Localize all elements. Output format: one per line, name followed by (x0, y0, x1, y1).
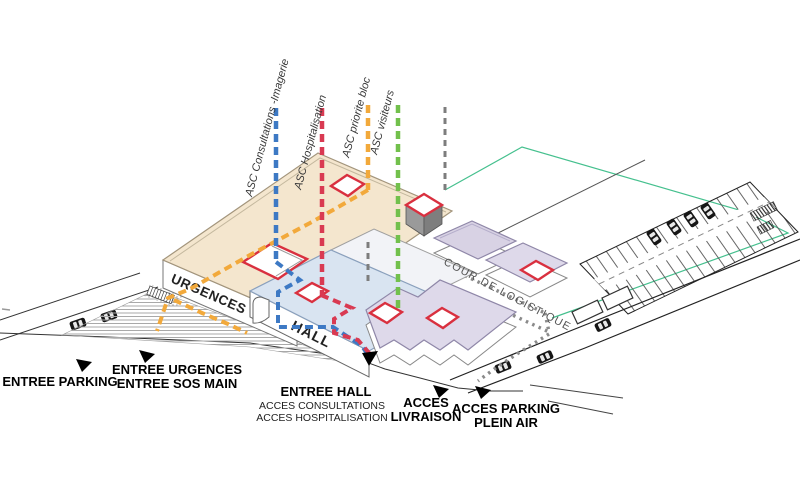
acces-livraison-label-1: ACCES (403, 395, 449, 410)
road-car-icon (594, 317, 612, 332)
acces-parking-label-1: ACCES PARKING (452, 401, 560, 416)
entree-parking-label: ENTREE PARKING (2, 374, 117, 389)
asc-label-visiteurs: ASC visiteurs (368, 88, 397, 156)
kiosk (253, 297, 269, 323)
axonometric-drawing: URGENCES HALL COUR DE LOGISTIQUE ASC Con… (0, 0, 800, 478)
acces-parking-label-2: PLEIN AIR (474, 415, 538, 430)
site-diagram: URGENCES HALL COUR DE LOGISTIQUE ASC Con… (0, 0, 800, 478)
entree-hall-label-1: ENTREE HALL (281, 384, 372, 399)
road-car-icon (494, 360, 512, 374)
arrow-acces-parking (475, 386, 491, 399)
entree-hall-label-3: ACCES HOSPITALISATION (256, 412, 387, 424)
road-car-icon (536, 350, 554, 365)
acces-livraison-label-2: LIVRAISON (391, 409, 462, 424)
entree-urgences-label-1: ENTREE URGENCES (112, 362, 242, 377)
entree-urgences-label-2: ENTREE SOS MAIN (117, 376, 238, 391)
tick-mark (2, 309, 10, 310)
road-end-line (530, 385, 623, 398)
entree-hall-label-2: ACCES CONSULTATIONS (259, 400, 385, 412)
arrow-entree-parking (76, 359, 92, 372)
